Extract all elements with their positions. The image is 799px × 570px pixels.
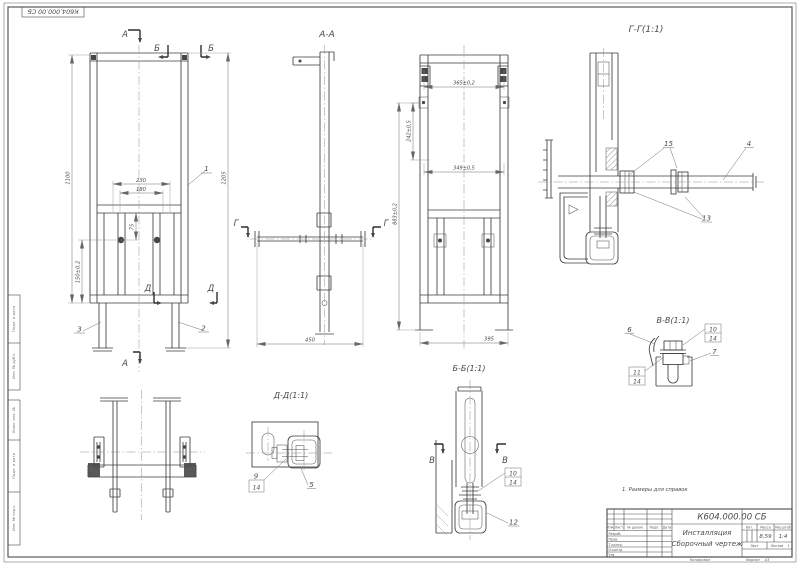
titleblock-subtitle: Сборочный чертеж [672,540,743,548]
section-mark-v-left: В [429,456,435,466]
titleblock-row-prov: Пров. [609,537,619,541]
callout-14: 14 [509,480,517,487]
section-gg-view: Г-Г(1:1) 15 4 13 [538,25,765,264]
margin-stamp-label: Взам. инв. № [11,407,16,433]
section-mark-b-left: Б [154,44,160,54]
section-mark-g-right: Г [384,219,390,229]
margin-stamp-label: Инв. № подл. [11,505,16,531]
dim-450: 450 [305,338,316,344]
dim-365: 365±0,2 [453,81,475,87]
titleblock-format-value: А3 [765,558,770,562]
titleblock-row-nkontr: Н.контр. [609,548,624,552]
section-bb-label: Б-Б(1:1) [453,364,486,373]
callout-13: 13 [702,215,711,223]
drawing-note: 1. Размеры для справок [622,487,688,493]
titleblock-sheets-value: 1 [787,544,789,548]
section-vv-view: В-В(1:1) 6 10 14 7 11 14 [625,316,721,386]
section-gg-label: Г-Г(1:1) [629,25,664,35]
titleblock-scale-label: Масштаб [775,526,791,530]
callout-1: 1 [204,165,208,173]
titleblock-lit-label: Лит. [746,526,754,530]
titleblock-mass-value: 8,59 [759,534,772,540]
section-mark-b-right: Б [208,44,214,54]
callout-14: 14 [633,379,641,386]
title-block: К604.000.00 СБ Инсталляция Сборочный чер… [607,509,792,562]
section-mark-d-right: Д [207,284,215,294]
margin-stamp-label: Подп. и дата [11,453,16,479]
dim-1100: 1100 [66,171,72,185]
corner-stamp-number: К604.000.00 СБ [27,8,78,15]
section-mark-v-right: В [502,456,508,466]
titleblock-row-utv: Утв. [609,553,616,557]
dim-349: 349±0,5 [453,166,475,172]
section-mark-a-bottom: А [121,359,128,369]
dim-1205: 1205 [222,171,228,185]
dim-230: 230 [136,178,147,184]
titleblock-kopiroval: Копировал [690,558,711,562]
dim-75: 75 [130,223,136,230]
titleblock-mass-label: Масса [760,526,771,530]
dim-180: 180 [136,187,147,193]
dim-150: 150±0,2 [76,261,82,284]
section-mark-a-top: А [121,30,128,40]
callout-14: 14 [709,336,717,343]
callout-9: 9 [254,473,259,481]
titleblock-title: Инсталляция [683,529,732,537]
callout-12: 12 [509,519,518,527]
margin-stamp-label: Инв. № дубл. [11,353,16,379]
titleblock-row-tkontr: Т.контр. [608,543,623,547]
callout-5: 5 [309,481,314,489]
callout-10: 10 [509,471,517,478]
section-mark-g-left: Г [234,219,240,229]
callout-4: 4 [747,140,751,148]
left-margin-stamps: Подп. и дата Инв. № дубл. Взам. инв. № П… [8,295,20,545]
titleblock-format-label: Формат [746,558,761,562]
side-view: 365±0,2 242±0,5 883±0,2 349±0,5 395 [393,45,514,350]
dim-395: 395 [484,337,495,343]
front-view: А А Б Б Д Д 230 180 1100 150±0,2 75 1205… [66,30,232,372]
callout-2: 2 [201,325,206,333]
callout-10: 10 [709,327,717,334]
assembly-drawing-canvas: К604.000.00 СБ Подп. и дата Инв. № дубл.… [0,0,799,565]
titleblock-col-data: Дата [663,526,672,530]
dim-242: 242±0,5 [407,120,413,142]
titleblock-row-razrab: Разраб. [609,532,622,536]
corner-stamp: К604.000.00 СБ [22,7,84,17]
section-mark-d-left: Д [144,284,152,294]
section-vv-label: В-В(1:1) [657,316,690,325]
callout-15: 15 [664,140,673,148]
callout-7: 7 [712,348,717,356]
callout-11: 11 [633,370,641,377]
titleblock-sheets-label: Листов [771,544,783,548]
dim-883: 883±0,2 [393,203,399,225]
titleblock-sheet-label: Лист [750,544,758,548]
section-bb-view: Б-Б(1:1) В В 10 14 12 [429,364,521,540]
titleblock-col-doc: № докум. [627,526,643,530]
titleblock-scale-value: 1:4 [779,534,788,540]
drawing-sheet: К604.000.00 СБ Подп. и дата Инв. № дубл.… [0,0,799,565]
section-aa-label: А-А [318,30,335,40]
titleblock-doc-number: К604.000.00 СБ [697,513,766,523]
titleblock-col-podp: Подп. [650,526,660,530]
callout-3: 3 [77,326,81,334]
bottom-view [80,390,205,520]
callout-14: 14 [253,485,261,492]
margin-stamp-label: Подп. и дата [11,306,16,332]
section-dd-view: Д-Д(1:1) 9 14 5 [246,391,332,492]
titleblock-col-list: Лист [615,526,623,530]
section-aa-view: А-А Г Г 450 [234,30,390,347]
callout-6: 6 [627,326,632,334]
sheet-frame [4,3,796,562]
titleblock-col-izm: Изм. [607,526,615,530]
section-dd-label: Д-Д(1:1) [273,391,309,400]
